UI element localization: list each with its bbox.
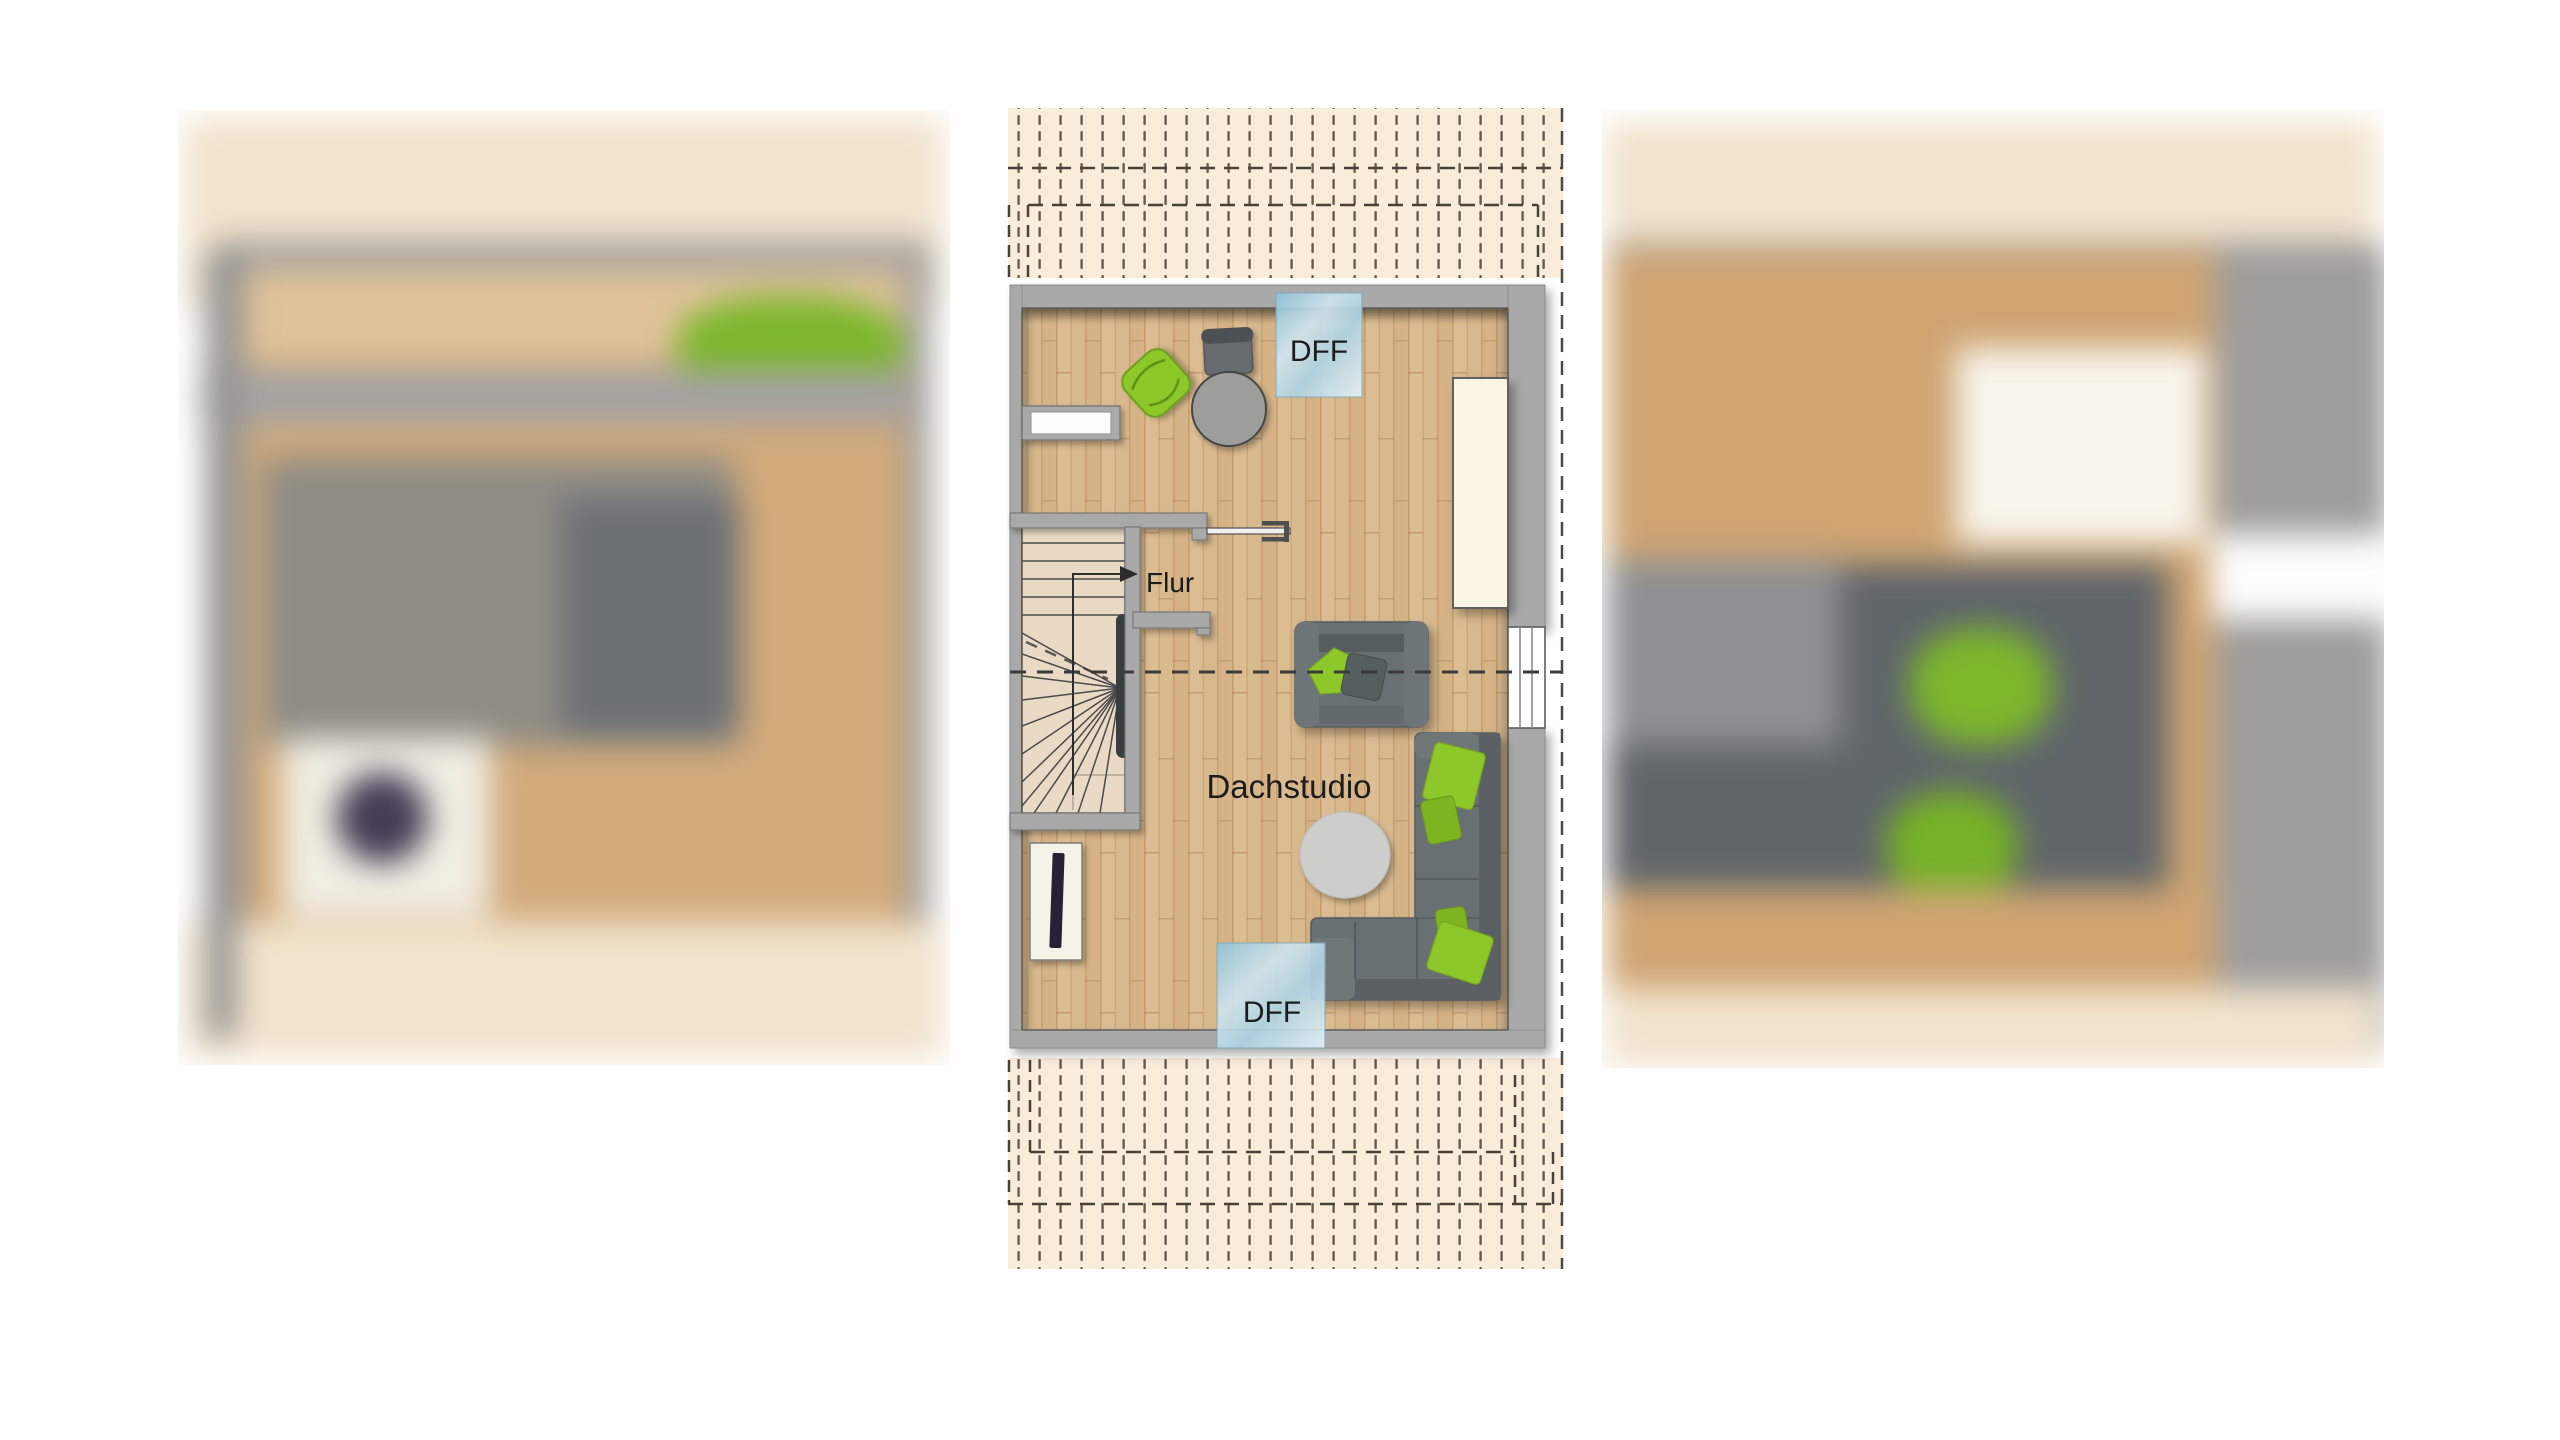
attic-floorplan: DFF Flur Dachstudio DFF (1006, 106, 1564, 1270)
wall-niche-shelf (1022, 406, 1120, 440)
right-floorplan-content (1602, 110, 2384, 1068)
wall-right-lower (1508, 728, 1545, 1048)
left-inner-wall (202, 370, 902, 424)
tv-sideboard (1030, 843, 1082, 960)
label-flur: Flur (1146, 567, 1194, 598)
flur-lower-wall (1133, 612, 1210, 628)
right-sofa-light (1608, 560, 1840, 745)
screenshot-root: DFF Flur Dachstudio DFF (0, 0, 2560, 1440)
left-dark-furniture (562, 498, 740, 736)
right-white-fixture (1956, 348, 2206, 544)
roof-area-top (1008, 108, 1563, 278)
window-right (1508, 627, 1545, 728)
left-floorplan-content (178, 110, 950, 1065)
left-basin-circle (336, 772, 428, 864)
wall-right-upper (1508, 285, 1545, 627)
label-dff-top: DFF (1290, 335, 1348, 368)
sideboard-right (1453, 378, 1508, 608)
right-roof-area-bottom (1608, 988, 2378, 1066)
top-wall-inner-shadow (1022, 308, 1508, 324)
right-pillow-blob-2 (1886, 792, 2018, 900)
roof-area-bottom (1008, 1058, 1563, 1269)
armchair-gray-pillow (1340, 652, 1388, 701)
round-table-top (1192, 372, 1266, 446)
left-roof-area-bottom (186, 922, 942, 1058)
right-door-gap (2210, 534, 2384, 620)
left-outer-wall-edge (206, 250, 236, 1038)
armchair (1295, 622, 1428, 727)
label-dachstudio: Dachstudio (1206, 768, 1371, 805)
label-dff-bottom: DFF (1243, 996, 1301, 1029)
desk-chair-top (1201, 327, 1255, 376)
left-floorplan-blurred (178, 110, 950, 1065)
right-wall-band (2216, 250, 2384, 1050)
right-pillow-blob-1 (1910, 628, 2052, 746)
wall-left (1010, 285, 1022, 1048)
right-floorplan-blurred (1602, 110, 2384, 1068)
coffee-table-oval (1300, 812, 1390, 898)
